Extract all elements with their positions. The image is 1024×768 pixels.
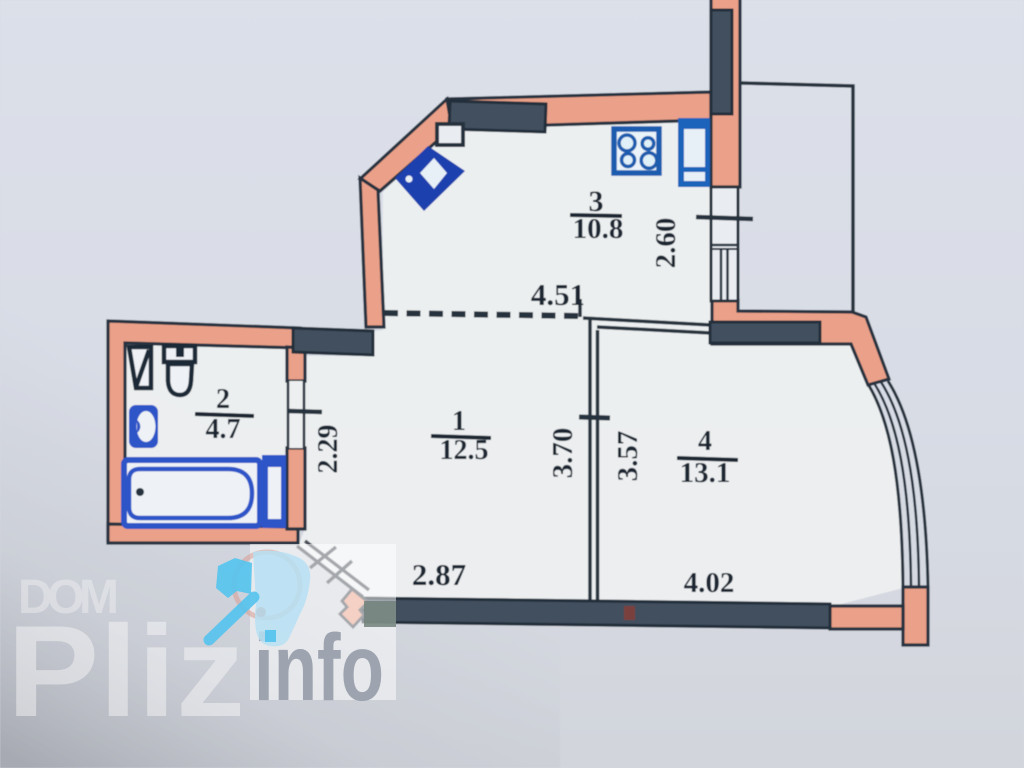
svg-text:3.70: 3.70 bbox=[547, 428, 579, 479]
svg-text:2: 2 bbox=[216, 384, 230, 415]
svg-text:1: 1 bbox=[452, 406, 466, 437]
svg-text:13.1: 13.1 bbox=[680, 457, 731, 489]
svg-text:2.60: 2.60 bbox=[650, 218, 682, 269]
svg-text:4.02: 4.02 bbox=[684, 567, 735, 599]
svg-text:Pliz: Pliz bbox=[7, 598, 245, 744]
svg-text:4.7: 4.7 bbox=[206, 414, 241, 445]
svg-text:4.51: 4.51 bbox=[531, 277, 585, 312]
svg-text:4: 4 bbox=[698, 426, 712, 457]
svg-text:2.87: 2.87 bbox=[412, 557, 466, 592]
svg-text:3.57: 3.57 bbox=[612, 431, 644, 482]
svg-text:2.29: 2.29 bbox=[313, 425, 344, 474]
